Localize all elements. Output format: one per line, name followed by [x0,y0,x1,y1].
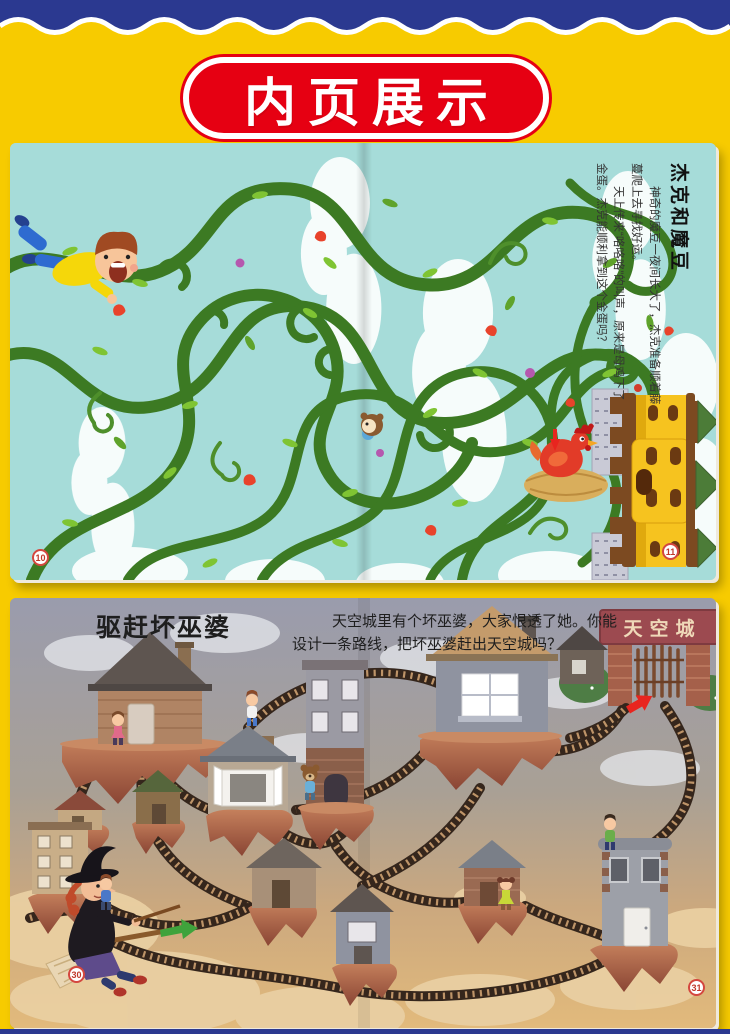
page1-paragraph: 天上传来“咯咯咯”的叫声，原来是母鸡下了金蛋。杰克能顺利拿到这个金蛋吗？ [591,163,627,405]
page-number-30: 30 [68,966,85,983]
castle [610,384,716,567]
page2-description-line2: 设计一条路线，把坏巫婆赶出天空城吗？ [292,633,562,654]
page-number-31: 31 [688,979,705,996]
page1-title: 杰克和魔豆 [667,163,694,405]
page2-title: 驱赶坏巫婆 [96,608,231,644]
page-number-11: 11 [662,543,679,560]
skycity-maze-page: 驱赶坏巫婆 天空城里有个坏巫婆，大家恨透了她。你能 设计一条路线，把坏巫婆赶出天… [10,598,716,1028]
beanstalk-maze-page: 杰克和魔豆 神奇的魔豆一夜间长大了，杰克准备顺着藤蔓爬上去寻找好运。 天上传来“… [10,143,716,580]
section-title-banner: 内页展示 [183,57,549,139]
building-big-gray [598,838,672,946]
gate-sign-text: 天空城 [600,614,716,641]
skycity-maze-illustration [10,598,716,1028]
banner-label: 内页展示 [232,61,500,136]
bottom-band [0,1029,730,1034]
page2-description-line1: 天空城里有个坏巫婆，大家恨透了她。你能 [332,610,617,631]
page-number-10: 10 [32,549,49,566]
product-inner-pages-showcase: { "banner": { "label": "内页展示" }, "pages"… [0,0,730,1034]
top-wave-band [0,0,730,44]
page1-paragraph: 神奇的魔豆一夜间长大了，杰克准备顺着藤蔓爬上去寻找好运。 [626,163,662,405]
page1-story-text: 杰克和魔豆 神奇的魔豆一夜间长大了，杰克准备顺着藤蔓爬上去寻找好运。 天上传来“… [591,163,694,405]
